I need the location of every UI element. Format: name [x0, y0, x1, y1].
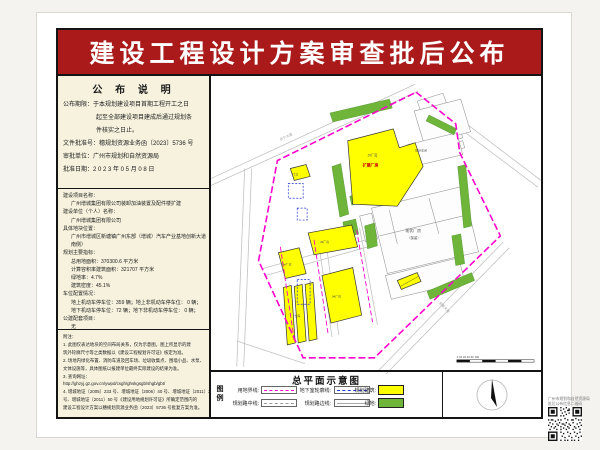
- text-line: 建筑密度：45.1%: [63, 282, 205, 290]
- text-line: 筑外轮廓尺寸等之类数据以《建设工程规划许可证》核定为准。: [63, 349, 205, 357]
- text-line: 文体设施等，具体图纸以报建单位最终实际建设的结果为准。: [63, 365, 205, 373]
- legend-label: 规划路边线:: [295, 400, 331, 407]
- scale-bar: 0 10 20 40 60 100: [457, 355, 534, 362]
- text-line: 南侧）: [63, 241, 205, 249]
- text-line: 计算容积率建筑面积：321707 平方米: [63, 266, 205, 274]
- legend-label: 绿地:: [347, 400, 376, 407]
- text-line: 建设项目名称：: [63, 192, 205, 200]
- content-row: 公 布 说 明 公布期限：于本规划建设项目首期工程开工之日 起至全部建设项目建成…: [58, 76, 541, 417]
- scale-labels: 0 10 20 40 60 100: [457, 355, 480, 359]
- qr-caption: 批后公布信息二维码: [548, 402, 588, 407]
- text-line: 车位配置情况：: [63, 290, 205, 298]
- text-line: 广州增城集团有限公司装卸加油装置及配件楼扩建: [63, 200, 205, 208]
- announcement-section: 公 布 说 明 公布期限：于本规划建设项目首期工程开工之日 起至全部建设项目建成…: [58, 76, 209, 189]
- text-line: 建设单位（个人）名称：: [63, 208, 205, 216]
- building-label-red: 扩建厂房: [363, 163, 379, 168]
- qr-code: [548, 407, 582, 441]
- building-label: （保留）: [407, 235, 420, 240]
- text-line: 规划主要指标：: [63, 249, 205, 257]
- legend-swatch-road-center: [261, 399, 297, 407]
- north-arrow-box: [442, 372, 541, 417]
- building-label: 现状厂房: [405, 228, 421, 233]
- text-line: 建设工程设计方案以穗规划资源业务函〔2023〕5736 号批复方案为准。: [63, 404, 205, 412]
- text-line: 4. 增城地证〔2005〕233 号、增城地证〔2006〕40 号、增城地证〔2…: [63, 388, 205, 396]
- text-line: 附注：: [63, 333, 205, 341]
- text-line: 号、增城地证〔2011〕50 号《建设用地规划许可证》所确定范围内的: [63, 396, 205, 404]
- text-line: 2. 场地内绿化布置、消防车道及回车场、垃圾收集点、围墙小品、水泵、: [63, 357, 205, 365]
- text-line: 起至全部建设项目建成后通过规划条: [63, 112, 205, 125]
- text-line: 1. 此图仅表达地块的空间布局关系，仅为示意图，图上所显示的建: [63, 341, 205, 349]
- building-label: 4#厂房: [282, 262, 291, 267]
- legend: 总平面示意图 图例 用地界线: 地下室轮廓线: 规划建筑: 规划路中线: 规划路…: [211, 372, 442, 417]
- legend-band: 总平面示意图 图例 用地界线: 地下室轮廓线: 规划建筑: 规划路中线: 规划路…: [211, 370, 541, 417]
- building-label: 门卫: [292, 171, 298, 176]
- text-line: 总用地面积：370300.6 平方米: [63, 258, 205, 266]
- road-label: 永宁大道: [279, 131, 294, 141]
- legend-swatch-green: [378, 398, 404, 408]
- text-line: 文件批准号：穗规划资源业务函〔2023〕5736 号: [63, 138, 205, 151]
- building-label: 5#厂房: [332, 293, 341, 298]
- text-line: 件核实之日止。: [63, 125, 205, 138]
- plan-title: 总平面示意图: [211, 373, 442, 387]
- building-label: 2#厂房: [368, 153, 378, 158]
- text-line: 地下机动车停车位：72 辆；地下非机动车停车位： 0 辆；: [63, 307, 205, 315]
- legend-label: 地下室轮廓线:: [295, 387, 331, 394]
- title-banner: 建设工程设计方案审查批后公布: [58, 30, 541, 76]
- text-line: 批准日期：2 0 2 3 年 0 5 月 0 8 日: [63, 164, 205, 177]
- text-line: 广州市增城区新塘镇广州东部（增城）汽车产业基地创新大道: [63, 233, 205, 241]
- text-line: 公建配套项目：: [63, 315, 205, 323]
- qr-caption: 广州市规划和自然资源局: [548, 397, 588, 402]
- legend-header: 图例: [214, 385, 224, 403]
- text-line: 无: [63, 323, 205, 330]
- page-title: 建设工程设计方案审查批后公布: [89, 34, 509, 70]
- legend-label: 用地界线:: [225, 387, 259, 394]
- legend-label: 规划建筑:: [347, 387, 376, 394]
- text-line: 审批单位：广州市规划和自然资源局: [63, 151, 205, 164]
- text-line: 地上机动车停车位：359 辆；地上非机动车停车位： 0 辆；: [63, 299, 205, 307]
- text-line: 3. 查询网址：: [63, 373, 205, 381]
- document-sheet: 建设工程设计方案审查批后公布 公 布 说 明 公布期限：于本规划建设项目首期工程…: [36, 12, 572, 438]
- building-label: 3#厂房: [320, 239, 329, 244]
- site-plan-map: 2#厂房 扩建厂房 现状厂房 （保留） 现状车间 3#厂房 4#厂房 5#厂房 …: [211, 76, 541, 374]
- drawing-frame: 建设工程设计方案审查批后公布 公 布 说 明 公布期限：于本规划建设项目首期工程…: [56, 28, 543, 419]
- north-arrow-icon: [470, 375, 514, 415]
- project-info-section: 建设项目名称： 广州增城集团有限公司装卸加油装置及配件楼扩建 建设单位（个人）名…: [58, 189, 209, 330]
- legend-swatch-boundary: [261, 386, 297, 394]
- text-line: 绿地率：4.7%: [63, 274, 205, 282]
- legend-label: 规划路中线:: [225, 400, 259, 407]
- plan-area: 2#厂房 扩建厂房 现状厂房 （保留） 现状车间 3#厂房 4#厂房 5#厂房 …: [211, 76, 541, 417]
- building-label: 现状车间: [415, 148, 427, 153]
- qr-block: 广州市规划和自然资源局 批后公布信息二维码: [548, 397, 588, 441]
- info-panel: 公 布 说 明 公布期限：于本规划建设项目首期工程开工之日 起至全部建设项目建成…: [58, 76, 211, 417]
- building-label: 仓库: [294, 313, 300, 318]
- planned-building-main: [348, 129, 423, 206]
- text-line: 具体地块位置：: [63, 225, 205, 233]
- notes-section: 附注： 1. 此图仅表达地块的空间布局关系，仅为示意图，图上所显示的建 筑外轮廓…: [58, 330, 209, 412]
- text-line: 广州增城集团有限公司: [63, 217, 205, 225]
- site-plan-svg: 2#厂房 扩建厂房 现状厂房 （保留） 现状车间 3#厂房 4#厂房 5#厂房 …: [211, 76, 541, 374]
- roads: [211, 84, 541, 374]
- legend-swatch-planned-building: [378, 385, 404, 395]
- text-line: 公布期限：于本规划建设项目首期工程开工之日: [63, 99, 205, 112]
- url-line: http://ghzyj.gz.gov.cn/ywpd/csgh/ghskgsg…: [63, 380, 205, 388]
- announcement-title: 公 布 说 明: [63, 81, 205, 96]
